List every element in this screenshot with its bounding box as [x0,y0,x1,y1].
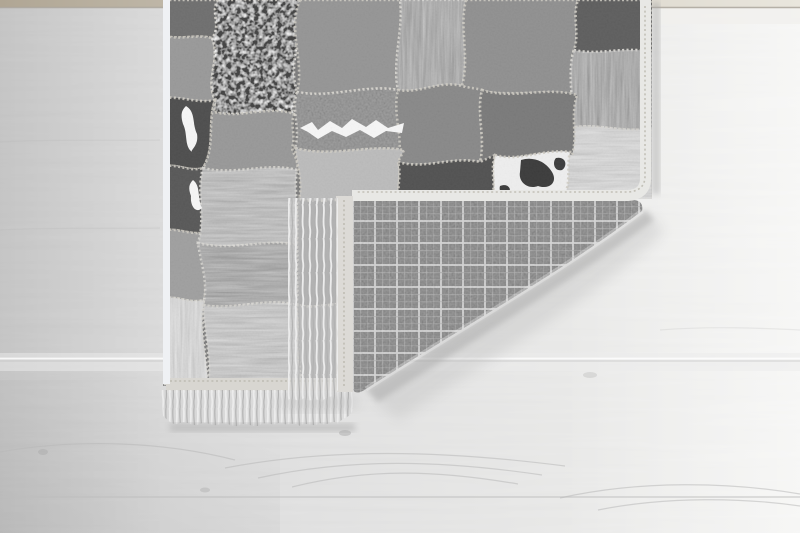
plank-bright-band [650,8,800,24]
wood-knot [200,488,210,493]
rug-scene [0,0,800,533]
flap-fringe-tassels [288,198,338,402]
fringe-shadow [170,423,355,432]
product-photo [0,0,800,533]
wood-knot [38,449,48,455]
right-edge-shadow [652,2,660,194]
wood-knot [583,372,597,378]
